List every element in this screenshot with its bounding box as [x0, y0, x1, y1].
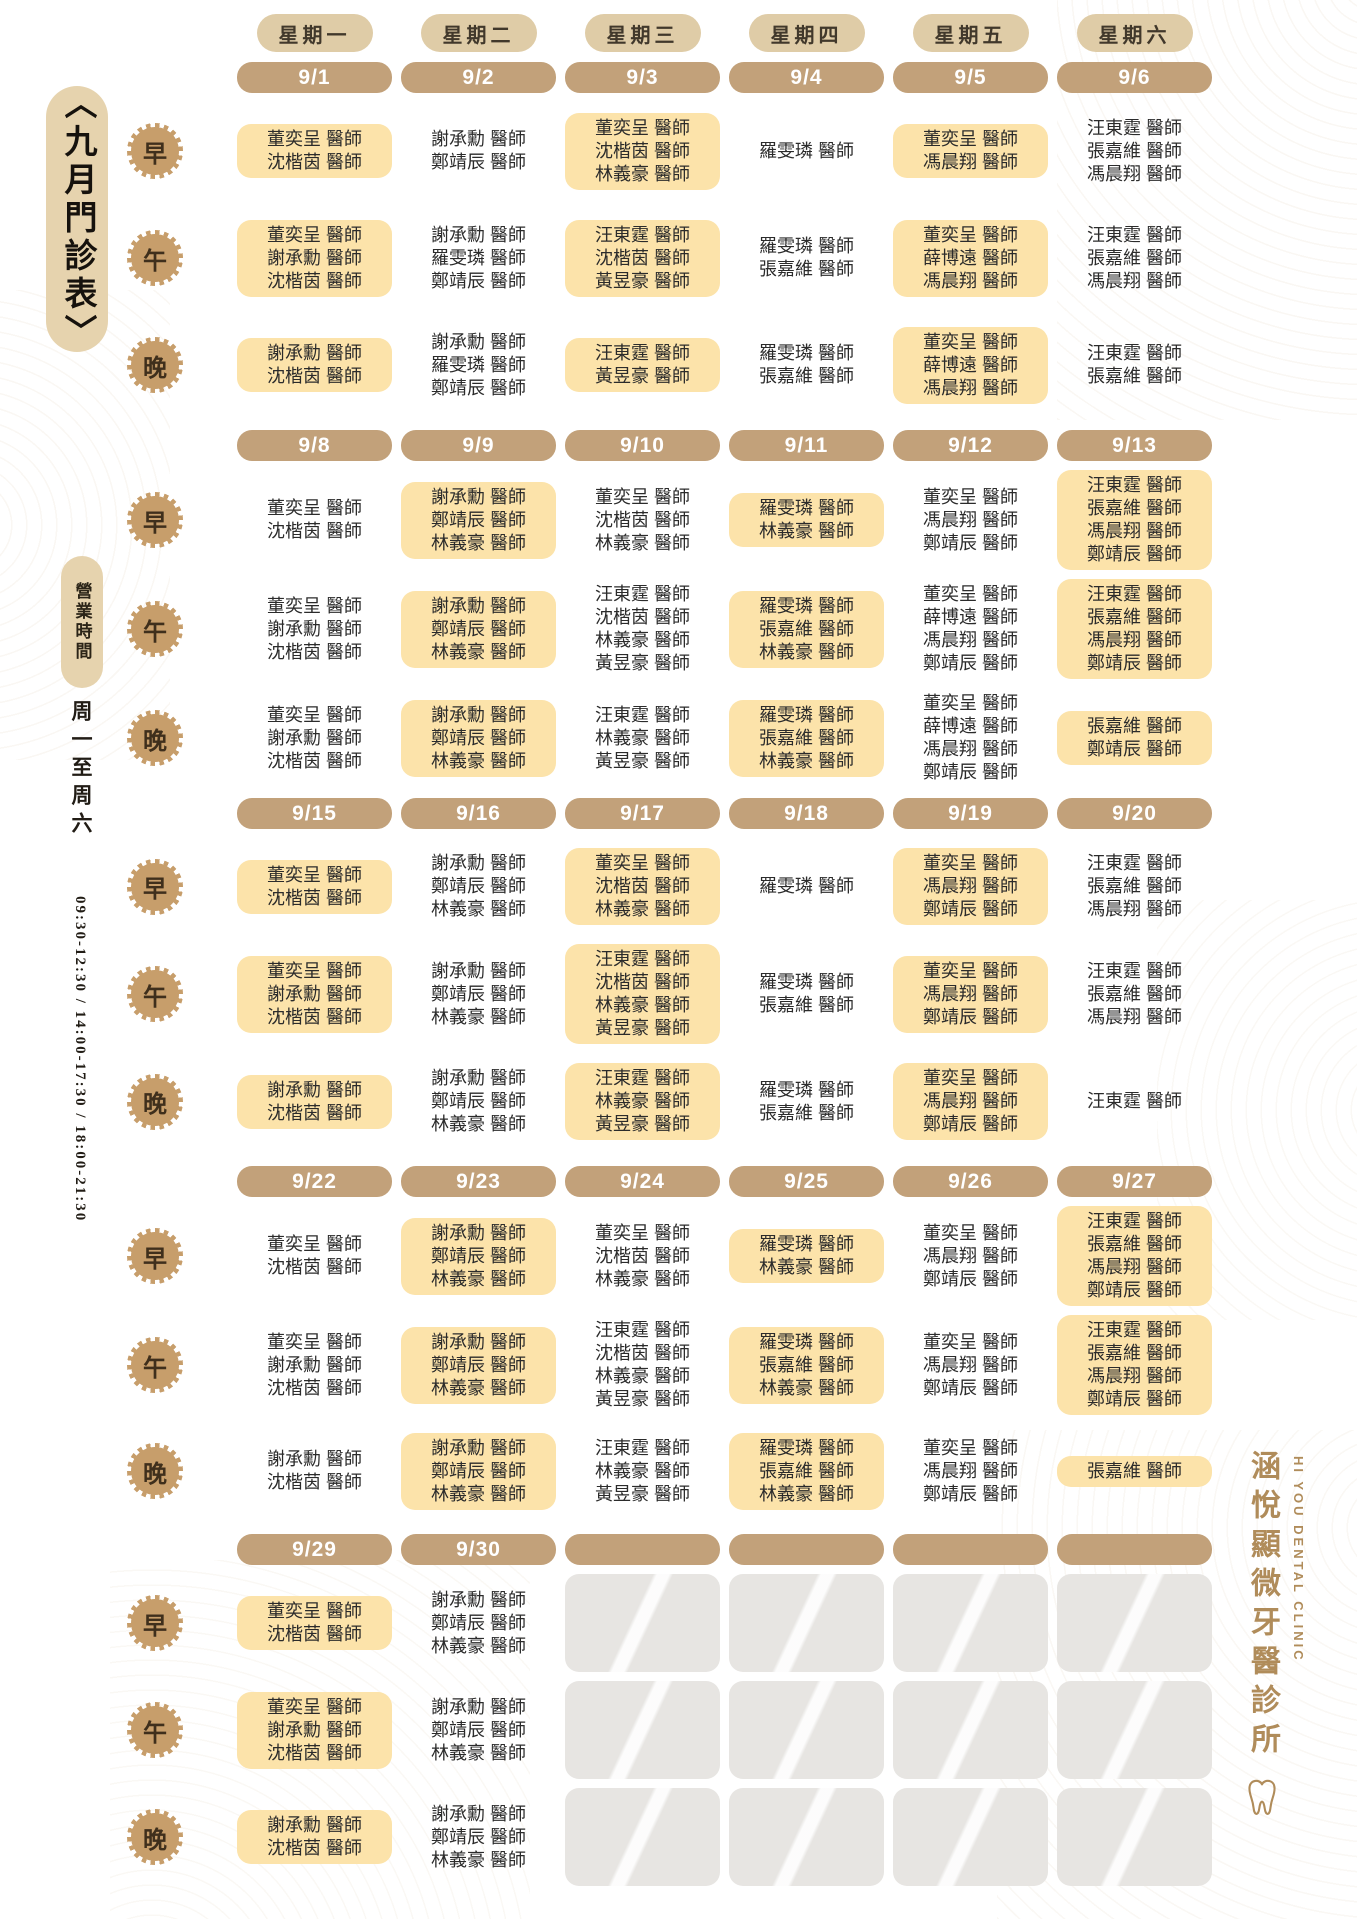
clinic-logo-en: HI YOU DENTAL CLINIC	[1291, 1456, 1306, 1822]
doctor-name: 汪東霆 醫師	[595, 1067, 690, 1090]
doctor-name: 羅雯璘 醫師	[759, 1437, 854, 1460]
doctor-name: 沈楷茵 醫師	[595, 247, 690, 270]
time-slot-badge: 午	[127, 966, 183, 1022]
weekday-header: 星期三	[585, 14, 701, 52]
doctor-name: 林義豪 醫師	[595, 898, 690, 921]
time-slot-label: 午	[143, 612, 167, 647]
doctor-name: 謝承勳 醫師	[267, 1448, 362, 1471]
doctor-name: 鄭靖辰 醫師	[431, 1612, 526, 1635]
doctor-name: 謝承勳 醫師	[431, 1331, 526, 1354]
doctor-name: 謝承勳 醫師	[267, 727, 362, 750]
time-slot-label: 早	[143, 869, 167, 904]
doctor-name: 林義豪 醫師	[595, 727, 690, 750]
doctor-name: 謝承勳 醫師	[431, 331, 526, 354]
doctor-name: 汪東霆 醫師	[595, 1437, 690, 1460]
doctor-name: 謝承勳 醫師	[431, 1067, 526, 1090]
doctor-name: 鄭靖辰 醫師	[431, 1090, 526, 1113]
doctor-name: 林義豪 醫師	[595, 1460, 690, 1483]
weekday-header: 星期四	[749, 14, 865, 52]
time-slot-badge: 晚	[127, 1443, 183, 1499]
date-pill: 9/13	[1057, 430, 1212, 461]
schedule-cell: 董奕呈 醫師謝承勳 醫師沈楷茵 醫師	[237, 591, 392, 668]
doctor-name: 張嘉維 醫師	[759, 258, 854, 281]
schedule-cell: 張嘉維 醫師鄭靖辰 醫師	[1057, 711, 1212, 765]
schedule-cell: 謝承勳 醫師羅雯璘 醫師鄭靖辰 醫師	[401, 327, 556, 404]
week-spacer	[112, 798, 228, 829]
doctor-name: 鄭靖辰 醫師	[923, 1483, 1018, 1506]
week-spacer	[112, 1534, 228, 1565]
time-slot-badge: 早	[127, 123, 183, 179]
doctor-name: 謝承勳 醫師	[431, 128, 526, 151]
doctor-name: 謝承勳 醫師	[267, 618, 362, 641]
doctor-name: 沈楷茵 醫師	[267, 1006, 362, 1029]
doctor-name: 馮晨翔 醫師	[923, 1245, 1018, 1268]
date-pill: 9/10	[565, 430, 720, 461]
schedule-cell: 汪東霆 醫師張嘉維 醫師	[1057, 338, 1212, 392]
schedule-cell: 謝承勳 醫師沈楷茵 醫師	[237, 1444, 392, 1498]
doctor-name: 張嘉維 醫師	[1087, 1233, 1182, 1256]
schedule-cell: 董奕呈 醫師沈楷茵 醫師	[237, 124, 392, 178]
schedule-cell: 羅雯璘 醫師張嘉維 醫師	[729, 967, 884, 1021]
doctor-name: 鄭靖辰 醫師	[431, 1245, 526, 1268]
schedule-cell: 汪東霆 醫師沈楷茵 醫師林義豪 醫師黃昱豪 醫師	[565, 1315, 720, 1415]
doctor-name: 謝承勳 醫師	[267, 247, 362, 270]
doctor-name: 林義豪 醫師	[431, 532, 526, 555]
doctor-name: 羅雯璘 醫師	[759, 140, 854, 163]
doctor-name: 謝承勳 醫師	[431, 486, 526, 509]
doctor-name: 羅雯璘 醫師	[759, 875, 854, 898]
business-hours-label: 營業時間	[70, 582, 95, 662]
doctor-name: 林義豪 醫師	[595, 629, 690, 652]
doctor-name: 羅雯璘 醫師	[759, 971, 854, 994]
week-block: 9/89/99/109/119/129/13早董奕呈 醫師沈楷茵 醫師謝承勳 醫…	[112, 430, 1222, 782]
doctor-name: 林義豪 醫師	[431, 898, 526, 921]
empty-cell	[893, 1788, 1048, 1886]
doctor-name: 林義豪 醫師	[595, 994, 690, 1017]
weekday-header: 星期一	[257, 14, 373, 52]
doctor-name: 董奕呈 醫師	[923, 1067, 1018, 1090]
doctor-name: 沈楷茵 醫師	[595, 875, 690, 898]
doctor-name: 林義豪 醫師	[431, 1742, 526, 1765]
time-slot-badge: 早	[127, 859, 183, 915]
empty-cell	[893, 1681, 1048, 1779]
doctor-name: 董奕呈 醫師	[595, 117, 690, 140]
doctor-name: 汪東霆 醫師	[1087, 342, 1182, 365]
schedule-cell: 羅雯璘 醫師林義豪 醫師	[729, 493, 884, 547]
doctor-name: 謝承勳 醫師	[267, 1719, 362, 1742]
schedule-cell: 董奕呈 醫師薛博遠 醫師馮晨翔 醫師	[893, 220, 1048, 297]
empty-cell	[729, 1574, 884, 1672]
schedule-cell: 董奕呈 醫師謝承勳 醫師沈楷茵 醫師	[237, 1327, 392, 1404]
doctor-name: 汪東霆 醫師	[1087, 583, 1182, 606]
time-slot-label: 午	[143, 1348, 167, 1383]
schedule-cell: 汪東霆 醫師林義豪 醫師黃昱豪 醫師	[565, 1433, 720, 1510]
doctor-name: 張嘉維 醫師	[1087, 1342, 1182, 1365]
schedule-cell: 謝承勳 醫師鄭靖辰 醫師林義豪 醫師	[401, 700, 556, 777]
doctor-name: 董奕呈 醫師	[267, 595, 362, 618]
schedule-cell: 羅雯璘 醫師張嘉維 醫師	[729, 231, 884, 285]
doctor-name: 汪東霆 醫師	[1087, 117, 1182, 140]
doctor-name: 董奕呈 醫師	[923, 128, 1018, 151]
clinic-logo-zh: 涵悅顯微牙醫診所	[1240, 1450, 1284, 1762]
doctor-name: 林義豪 醫師	[595, 1090, 690, 1113]
doctor-name: 林義豪 醫師	[759, 1483, 854, 1506]
doctor-name: 林義豪 醫師	[431, 750, 526, 773]
schedule-cell: 董奕呈 醫師謝承勳 醫師沈楷茵 醫師	[237, 1692, 392, 1769]
schedule-cell: 汪東霆 醫師沈楷茵 醫師林義豪 醫師黃昱豪 醫師	[565, 579, 720, 679]
doctor-name: 羅雯璘 醫師	[759, 595, 854, 618]
schedule-cell: 羅雯璘 醫師張嘉維 醫師林義豪 醫師	[729, 1327, 884, 1404]
schedule-cell: 董奕呈 醫師馮晨翔 醫師鄭靖辰 醫師	[893, 482, 1048, 559]
schedule-cell: 汪東霆 醫師張嘉維 醫師馮晨翔 醫師	[1057, 220, 1212, 297]
doctor-name: 汪東霆 醫師	[1087, 1090, 1182, 1113]
doctor-name: 張嘉維 醫師	[1087, 497, 1182, 520]
business-hours: 09:30-12:30 / 14:00-17:30 / 18:00-21:30	[71, 896, 88, 1222]
doctor-name: 馮晨翔 醫師	[923, 1090, 1018, 1113]
doctor-name: 董奕呈 醫師	[595, 852, 690, 875]
date-pill: 9/17	[565, 798, 720, 829]
date-pill: 9/2	[401, 62, 556, 93]
empty-cell	[1057, 1788, 1212, 1886]
doctor-name: 汪東霆 醫師	[1087, 474, 1182, 497]
time-slot-label: 晚	[143, 1820, 167, 1855]
doctor-name: 汪東霆 醫師	[1087, 852, 1182, 875]
date-pill: 9/20	[1057, 798, 1212, 829]
date-pill: 9/11	[729, 430, 884, 461]
time-slot-label: 早	[143, 134, 167, 169]
empty-cell	[729, 1788, 884, 1886]
doctor-name: 張嘉維 醫師	[759, 365, 854, 388]
schedule-cell: 謝承勳 醫師鄭靖辰 醫師林義豪 醫師	[401, 1063, 556, 1140]
doctor-name: 沈楷茵 醫師	[595, 1245, 690, 1268]
tooth-icon	[1241, 1776, 1283, 1822]
date-pill: 9/24	[565, 1166, 720, 1197]
time-slot-badge: 晚	[127, 1809, 183, 1865]
time-slot-badge: 午	[127, 1337, 183, 1393]
doctor-name: 謝承勳 醫師	[431, 595, 526, 618]
schedule-cell: 董奕呈 醫師沈楷茵 醫師林義豪 醫師	[565, 482, 720, 559]
doctor-name: 張嘉維 醫師	[1087, 365, 1182, 388]
time-slot-badge: 午	[127, 1702, 183, 1758]
time-slot-label: 晚	[143, 1084, 167, 1119]
empty-cell	[1057, 1574, 1212, 1672]
doctor-name: 林義豪 醫師	[759, 1377, 854, 1400]
doctor-name: 張嘉維 醫師	[759, 727, 854, 750]
doctor-name: 黃昱豪 醫師	[595, 1017, 690, 1040]
schedule-cell: 董奕呈 醫師謝承勳 醫師沈楷茵 醫師	[237, 220, 392, 297]
doctor-name: 鄭靖辰 醫師	[431, 618, 526, 641]
schedule-cell: 董奕呈 醫師謝承勳 醫師沈楷茵 醫師	[237, 700, 392, 777]
schedule-cell: 董奕呈 醫師薛博遠 醫師馮晨翔 醫師鄭靖辰 醫師	[893, 688, 1048, 788]
doctor-name: 董奕呈 醫師	[923, 331, 1018, 354]
doctor-name: 沈楷茵 醫師	[595, 971, 690, 994]
doctor-name: 羅雯璘 醫師	[759, 342, 854, 365]
doctor-name: 沈楷茵 醫師	[267, 270, 362, 293]
doctor-name: 鄭靖辰 醫師	[431, 1826, 526, 1849]
doctor-name: 董奕呈 醫師	[267, 497, 362, 520]
doctor-name: 林義豪 醫師	[431, 1483, 526, 1506]
doctor-name: 薛博遠 醫師	[923, 247, 1018, 270]
schedule-cell: 謝承勳 醫師沈楷茵 醫師	[237, 1810, 392, 1864]
date-pill: 9/29	[237, 1534, 392, 1565]
doctor-name: 馮晨翔 醫師	[923, 1354, 1018, 1377]
doctor-name: 董奕呈 醫師	[595, 486, 690, 509]
schedule-weeks: 9/19/29/39/49/59/6早董奕呈 醫師沈楷茵 醫師謝承勳 醫師鄭靖辰…	[112, 62, 1222, 1902]
doctor-name: 董奕呈 醫師	[267, 704, 362, 727]
doctor-name: 黃昱豪 醫師	[595, 1483, 690, 1506]
doctor-name: 謝承勳 醫師	[431, 960, 526, 983]
date-pill: 9/22	[237, 1166, 392, 1197]
empty-cell	[729, 1681, 884, 1779]
doctor-name: 羅雯璘 醫師	[759, 1079, 854, 1102]
doctor-name: 沈楷茵 醫師	[267, 365, 362, 388]
doctor-name: 謝承勳 醫師	[267, 1814, 362, 1837]
date-pill	[893, 1534, 1048, 1565]
weekday-header: 星期五	[913, 14, 1029, 52]
schedule-cell: 汪東霆 醫師	[1057, 1086, 1212, 1117]
schedule-cell: 汪東霆 醫師張嘉維 醫師馮晨翔 醫師鄭靖辰 醫師	[1057, 1206, 1212, 1306]
doctor-name: 張嘉維 醫師	[1087, 1460, 1182, 1483]
schedule-cell: 汪東霆 醫師黃昱豪 醫師	[565, 338, 720, 392]
date-pill: 9/5	[893, 62, 1048, 93]
doctor-name: 謝承勳 醫師	[431, 224, 526, 247]
schedule-cell: 汪東霆 醫師林義豪 醫師黃昱豪 醫師	[565, 1063, 720, 1140]
doctor-name: 謝承勳 醫師	[431, 1803, 526, 1826]
schedule-cell: 謝承勳 醫師鄭靖辰 醫師林義豪 醫師	[401, 1218, 556, 1295]
doctor-name: 黃昱豪 醫師	[595, 1113, 690, 1136]
date-pill: 9/6	[1057, 62, 1212, 93]
weekday-header: 星期二	[421, 14, 537, 52]
doctor-name: 薛博遠 醫師	[923, 715, 1018, 738]
schedule-cell: 董奕呈 醫師馮晨翔 醫師鄭靖辰 醫師	[893, 1063, 1048, 1140]
week-spacer	[112, 62, 228, 93]
week-block: 9/229/239/249/259/269/27早董奕呈 醫師沈楷茵 醫師謝承勳…	[112, 1166, 1222, 1518]
doctor-name: 董奕呈 醫師	[267, 1696, 362, 1719]
schedule-cell: 汪東霆 醫師張嘉維 醫師馮晨翔 醫師	[1057, 113, 1212, 190]
doctor-name: 鄭靖辰 醫師	[431, 1719, 526, 1742]
business-hours-label-pill: 營業時間	[61, 556, 103, 688]
doctor-name: 張嘉維 醫師	[1087, 875, 1182, 898]
doctor-name: 馮晨翔 醫師	[923, 151, 1018, 174]
doctor-name: 沈楷茵 醫師	[595, 606, 690, 629]
empty-cell	[565, 1788, 720, 1886]
doctor-name: 沈楷茵 醫師	[267, 1256, 362, 1279]
doctor-name: 鄭靖辰 醫師	[431, 1460, 526, 1483]
doctor-name: 林義豪 醫師	[595, 1365, 690, 1388]
doctor-name: 汪東霆 醫師	[1087, 224, 1182, 247]
date-pill: 9/23	[401, 1166, 556, 1197]
week-spacer	[112, 430, 228, 461]
doctor-name: 謝承勳 醫師	[267, 983, 362, 1006]
doctor-name: 汪東霆 醫師	[595, 704, 690, 727]
time-slot-label: 早	[143, 1239, 167, 1274]
doctor-name: 張嘉維 醫師	[1087, 140, 1182, 163]
week-block: 9/19/29/39/49/59/6早董奕呈 醫師沈楷茵 醫師謝承勳 醫師鄭靖辰…	[112, 62, 1222, 414]
doctor-name: 董奕呈 醫師	[267, 960, 362, 983]
time-slot-badge: 晚	[127, 1074, 183, 1130]
doctor-name: 林義豪 醫師	[595, 163, 690, 186]
date-pill: 9/30	[401, 1534, 556, 1565]
schedule-cell: 汪東霆 醫師林義豪 醫師黃昱豪 醫師	[565, 700, 720, 777]
date-pill	[565, 1534, 720, 1565]
time-slot-label: 早	[143, 1606, 167, 1641]
doctor-name: 林義豪 醫師	[431, 1635, 526, 1658]
doctor-name: 林義豪 醫師	[431, 1377, 526, 1400]
doctor-name: 鄭靖辰 醫師	[431, 1354, 526, 1377]
doctor-name: 沈楷茵 醫師	[267, 1471, 362, 1494]
doctor-name: 鄭靖辰 醫師	[923, 532, 1018, 555]
doctor-name: 鄭靖辰 醫師	[431, 270, 526, 293]
doctor-name: 林義豪 醫師	[595, 532, 690, 555]
schedule-cell: 謝承勳 醫師鄭靖辰 醫師林義豪 醫師	[401, 956, 556, 1033]
time-slot-label: 晚	[143, 1454, 167, 1489]
time-slot-badge: 晚	[127, 337, 183, 393]
doctor-name: 董奕呈 醫師	[923, 583, 1018, 606]
weekday-header-row: 星期一星期二星期三星期四星期五星期六	[112, 14, 1212, 52]
date-pill: 9/15	[237, 798, 392, 829]
schedule-cell: 董奕呈 醫師沈楷茵 醫師	[237, 493, 392, 547]
doctor-name: 馮晨翔 醫師	[1087, 898, 1182, 921]
doctor-name: 薛博遠 醫師	[923, 606, 1018, 629]
doctor-name: 張嘉維 醫師	[1087, 606, 1182, 629]
doctor-name: 沈楷茵 醫師	[267, 1837, 362, 1860]
doctor-name: 羅雯璘 醫師	[759, 497, 854, 520]
doctor-name: 羅雯璘 醫師	[759, 235, 854, 258]
doctor-name: 沈楷茵 醫師	[267, 750, 362, 773]
doctor-name: 羅雯璘 醫師	[431, 354, 526, 377]
doctor-name: 沈楷茵 醫師	[267, 520, 362, 543]
date-pill: 9/8	[237, 430, 392, 461]
schedule-poster: 〈九月門診表〉 營業時間 周一至周六 09:30-12:30 / 14:00-1…	[0, 0, 1357, 1919]
doctor-name: 沈楷茵 醫師	[267, 151, 362, 174]
schedule-cell: 羅雯璘 醫師張嘉維 醫師林義豪 醫師	[729, 700, 884, 777]
doctor-name: 謝承勳 醫師	[267, 1354, 362, 1377]
doctor-name: 馮晨翔 醫師	[1087, 520, 1182, 543]
schedule-cell: 謝承勳 醫師羅雯璘 醫師鄭靖辰 醫師	[401, 220, 556, 297]
time-slot-badge: 午	[127, 601, 183, 657]
schedule-cell: 汪東霆 醫師張嘉維 醫師馮晨翔 醫師鄭靖辰 醫師	[1057, 1315, 1212, 1415]
date-pill: 9/18	[729, 798, 884, 829]
doctor-name: 鄭靖辰 醫師	[923, 1113, 1018, 1136]
date-pill: 9/9	[401, 430, 556, 461]
doctor-name: 黃昱豪 醫師	[595, 1388, 690, 1411]
doctor-name: 馮晨翔 醫師	[923, 738, 1018, 761]
doctor-name: 謝承勳 醫師	[431, 1437, 526, 1460]
schedule-cell: 董奕呈 醫師馮晨翔 醫師鄭靖辰 醫師	[893, 1327, 1048, 1404]
doctor-name: 林義豪 醫師	[431, 1113, 526, 1136]
doctor-name: 董奕呈 醫師	[267, 864, 362, 887]
schedule-cell: 謝承勳 醫師鄭靖辰 醫師林義豪 醫師	[401, 591, 556, 668]
doctor-name: 沈楷茵 醫師	[267, 887, 362, 910]
month-title-pill: 〈九月門診表〉	[46, 86, 108, 352]
doctor-name: 張嘉維 醫師	[759, 994, 854, 1017]
doctor-name: 鄭靖辰 醫師	[923, 1006, 1018, 1029]
time-slot-label: 午	[143, 1713, 167, 1748]
schedule-cell: 謝承勳 醫師沈楷茵 醫師	[237, 338, 392, 392]
doctor-name: 汪東霆 醫師	[595, 342, 690, 365]
time-slot-label: 午	[143, 241, 167, 276]
schedule-cell: 汪東霆 醫師張嘉維 醫師馮晨翔 醫師鄭靖辰 醫師	[1057, 579, 1212, 679]
doctor-name: 董奕呈 醫師	[923, 692, 1018, 715]
schedule-cell: 汪東霆 醫師張嘉維 醫師馮晨翔 醫師	[1057, 956, 1212, 1033]
date-pill: 9/3	[565, 62, 720, 93]
doctor-name: 鄭靖辰 醫師	[923, 652, 1018, 675]
doctor-name: 張嘉維 醫師	[1087, 983, 1182, 1006]
doctor-name: 鄭靖辰 醫師	[923, 761, 1018, 784]
doctor-name: 馮晨翔 醫師	[1087, 1006, 1182, 1029]
schedule-cell: 謝承勳 醫師沈楷茵 醫師	[237, 1075, 392, 1129]
date-pill	[1057, 1534, 1212, 1565]
schedule-cell: 董奕呈 醫師沈楷茵 醫師	[237, 1596, 392, 1650]
doctor-name: 董奕呈 醫師	[923, 1437, 1018, 1460]
doctor-name: 鄭靖辰 醫師	[1087, 1388, 1182, 1411]
schedule-cell: 羅雯璘 醫師張嘉維 醫師	[729, 338, 884, 392]
empty-cell	[893, 1574, 1048, 1672]
doctor-name: 謝承勳 醫師	[431, 852, 526, 875]
doctor-name: 馮晨翔 醫師	[923, 270, 1018, 293]
doctor-name: 張嘉維 醫師	[759, 1460, 854, 1483]
doctor-name: 馮晨翔 醫師	[923, 509, 1018, 532]
doctor-name: 沈楷茵 醫師	[595, 1342, 690, 1365]
doctor-name: 謝承勳 醫師	[431, 1696, 526, 1719]
doctor-name: 董奕呈 醫師	[267, 224, 362, 247]
doctor-name: 沈楷茵 醫師	[267, 1623, 362, 1646]
schedule-cell: 董奕呈 醫師謝承勳 醫師沈楷茵 醫師	[237, 956, 392, 1033]
schedule-cell: 董奕呈 醫師沈楷茵 醫師林義豪 醫師	[565, 848, 720, 925]
schedule-cell: 董奕呈 醫師馮晨翔 醫師鄭靖辰 醫師	[893, 1218, 1048, 1295]
doctor-name: 馮晨翔 醫師	[923, 983, 1018, 1006]
schedule-cell: 羅雯璘 醫師張嘉維 醫師	[729, 1075, 884, 1129]
schedule-cell: 謝承勳 醫師鄭靖辰 醫師林義豪 醫師	[401, 1799, 556, 1876]
time-slot-badge: 晚	[127, 710, 183, 766]
schedule-cell: 羅雯璘 醫師林義豪 醫師	[729, 1229, 884, 1283]
empty-cell	[565, 1681, 720, 1779]
doctor-name: 沈楷茵 醫師	[267, 1377, 362, 1400]
schedule-cell: 汪東霆 醫師張嘉維 醫師馮晨翔 醫師	[1057, 848, 1212, 925]
schedule-cell: 汪東霆 醫師沈楷茵 醫師黃昱豪 醫師	[565, 220, 720, 297]
doctor-name: 沈楷茵 醫師	[267, 641, 362, 664]
doctor-name: 林義豪 醫師	[595, 1268, 690, 1291]
business-days: 周一至周六	[66, 700, 96, 840]
schedule-cell: 董奕呈 醫師沈楷茵 醫師	[237, 1229, 392, 1283]
schedule-cell: 董奕呈 醫師馮晨翔 醫師鄭靖辰 醫師	[893, 848, 1048, 925]
date-pill: 9/26	[893, 1166, 1048, 1197]
doctor-name: 羅雯璘 醫師	[759, 1331, 854, 1354]
doctor-name: 林義豪 醫師	[759, 750, 854, 773]
doctor-name: 馮晨翔 醫師	[1087, 1365, 1182, 1388]
doctor-name: 謝承勳 醫師	[431, 1222, 526, 1245]
doctor-name: 鄭靖辰 醫師	[431, 377, 526, 400]
empty-cell	[565, 1574, 720, 1672]
doctor-name: 鄭靖辰 醫師	[431, 727, 526, 750]
doctor-name: 汪東霆 醫師	[1087, 1210, 1182, 1233]
schedule-cell: 董奕呈 醫師馮晨翔 醫師	[893, 124, 1048, 178]
doctor-name: 董奕呈 醫師	[267, 1331, 362, 1354]
doctor-name: 鄭靖辰 醫師	[1087, 1279, 1182, 1302]
doctor-name: 謝承勳 醫師	[267, 1079, 362, 1102]
time-slot-badge: 午	[127, 230, 183, 286]
doctor-name: 馮晨翔 醫師	[923, 875, 1018, 898]
week-block: 9/299/30早董奕呈 醫師沈楷茵 醫師謝承勳 醫師鄭靖辰 醫師林義豪 醫師午…	[112, 1534, 1222, 1886]
doctor-name: 黃昱豪 醫師	[595, 270, 690, 293]
schedule-cell: 董奕呈 醫師馮晨翔 醫師鄭靖辰 醫師	[893, 1433, 1048, 1510]
schedule-cell: 謝承勳 醫師鄭靖辰 醫師林義豪 醫師	[401, 1692, 556, 1769]
doctor-name: 羅雯璘 醫師	[759, 704, 854, 727]
doctor-name: 董奕呈 醫師	[923, 960, 1018, 983]
month-title: 〈九月門診表〉	[53, 86, 101, 352]
doctor-name: 沈楷茵 醫師	[595, 140, 690, 163]
doctor-name: 馮晨翔 醫師	[923, 377, 1018, 400]
